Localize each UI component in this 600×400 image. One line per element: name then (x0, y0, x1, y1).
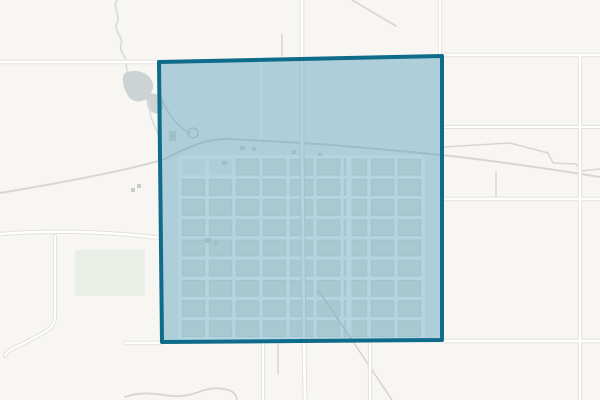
map-canvas[interactable] (0, 0, 600, 400)
building (137, 184, 141, 188)
park (75, 250, 145, 296)
building (131, 188, 135, 192)
selection-polygon[interactable] (159, 56, 442, 342)
map-viewport (0, 0, 600, 400)
park-area (75, 250, 145, 296)
